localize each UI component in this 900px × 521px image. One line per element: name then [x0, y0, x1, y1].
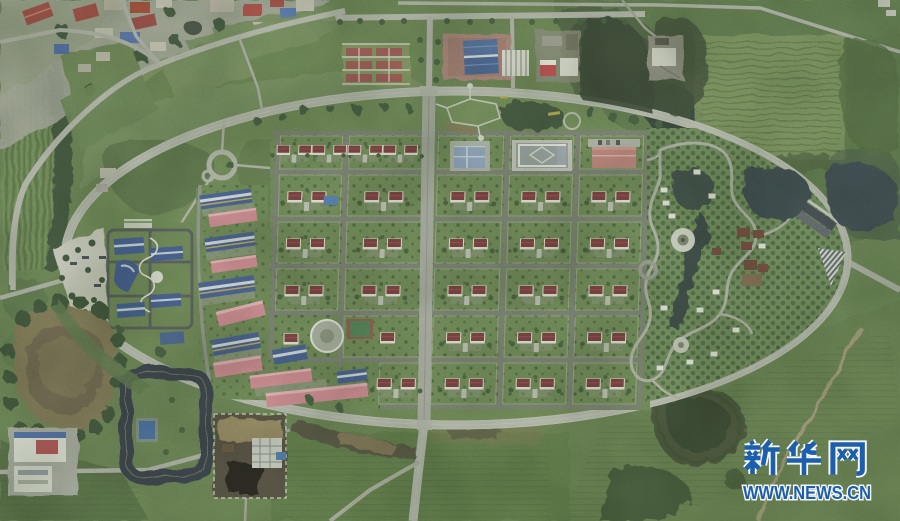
svg-text:WWW.NEWS.CN: WWW.NEWS.CN	[743, 483, 871, 503]
